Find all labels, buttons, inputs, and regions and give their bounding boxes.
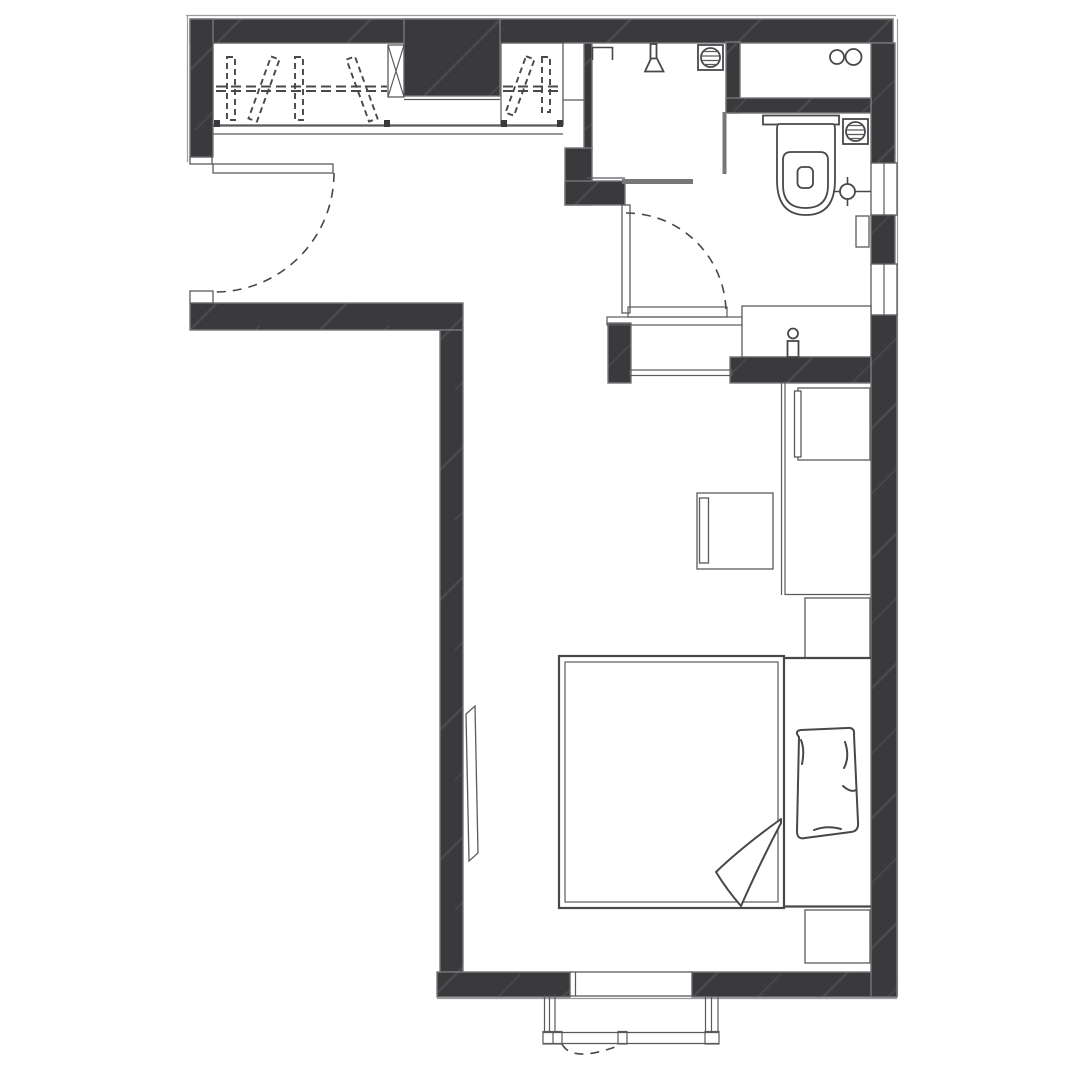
wall-left-upper (190, 19, 213, 157)
wc-area (742, 116, 871, 358)
bathroom-door-leaf (622, 205, 630, 313)
toilet (763, 116, 839, 216)
shower-room (587, 44, 725, 184)
wall-right-lower (871, 315, 897, 997)
entry-door-swing (215, 173, 334, 292)
bench (805, 910, 870, 963)
balcony (543, 972, 719, 1054)
chair (697, 493, 773, 569)
bathroom-door (607, 205, 742, 325)
balcony-window-swing (562, 1044, 618, 1054)
nightstand (805, 598, 870, 658)
railing-right (706, 996, 719, 1032)
balcony-door-frame (570, 972, 692, 996)
wall-top (190, 19, 893, 43)
entry-door-leaf (213, 164, 333, 173)
vanity (742, 306, 871, 357)
duvet-fold (716, 819, 781, 906)
bathroom-door-threshold (628, 307, 727, 317)
wall-bottom-left (437, 972, 570, 997)
bathroom-door-swing (626, 213, 726, 313)
wall-right-window-pillar (871, 215, 895, 264)
towel-bar (593, 48, 613, 61)
front-foot-3 (501, 120, 507, 127)
wall-hall-stub (608, 323, 631, 383)
wall-niche-bottom (726, 98, 871, 113)
desk-cabinet-top (798, 388, 870, 460)
wall-bedroom-north (730, 357, 871, 383)
front-foot-1 (214, 120, 220, 127)
wall-tv (466, 706, 478, 861)
shelf-column-x (388, 45, 404, 97)
storage-niche (830, 49, 862, 65)
faucet-body (788, 341, 799, 357)
wall-shower-left-thin (584, 43, 592, 150)
bedroom (466, 370, 871, 963)
desk-edge-lines (782, 383, 786, 595)
railing-left (545, 995, 556, 1032)
bedroom-doorway-threshold (630, 370, 732, 376)
water-point-circle (840, 184, 855, 199)
vanity-counter (742, 306, 871, 357)
floor-plan-canvas (0, 0, 1081, 1081)
wall-cabinet (856, 216, 869, 247)
pillow (797, 728, 858, 838)
shower-head (645, 44, 664, 72)
wall-cap-entry-bottom (190, 291, 213, 303)
railing-bottom (543, 1033, 719, 1044)
niche-circle-2 (846, 49, 862, 65)
built-in-dark-block (404, 19, 500, 96)
railing-corner-right (705, 1032, 719, 1045)
faucet-knob (788, 329, 798, 339)
wall-entry-L-horizontal (190, 303, 463, 330)
floor-plan-drawing (0, 0, 1081, 1081)
bed (559, 656, 871, 908)
niche-circle-1 (830, 50, 844, 64)
toilet-flush (798, 167, 814, 188)
front-foot-4 (557, 120, 563, 127)
wall-shower-foot (565, 181, 625, 205)
balcony-railing (543, 995, 719, 1044)
shower-head-cone (645, 59, 664, 72)
pillow-outline (797, 728, 858, 838)
wall-bottom-right (692, 972, 897, 997)
water-supply-point (833, 177, 871, 206)
wall-left-vertical (440, 330, 463, 972)
floor-drain-wc (843, 119, 868, 144)
front-foot-2 (384, 120, 390, 127)
entry-door (213, 164, 334, 292)
front-track-lines (213, 126, 563, 134)
wall-cap-entry-top (190, 157, 212, 164)
shower-threshold (622, 179, 693, 184)
desk-cabinet (795, 388, 871, 460)
chair-back (700, 498, 709, 563)
floor-drain-shower (698, 45, 723, 70)
desk-cabinet-edge (795, 391, 802, 457)
railing-mullion (618, 1032, 627, 1045)
wall-right-upper (871, 43, 895, 163)
